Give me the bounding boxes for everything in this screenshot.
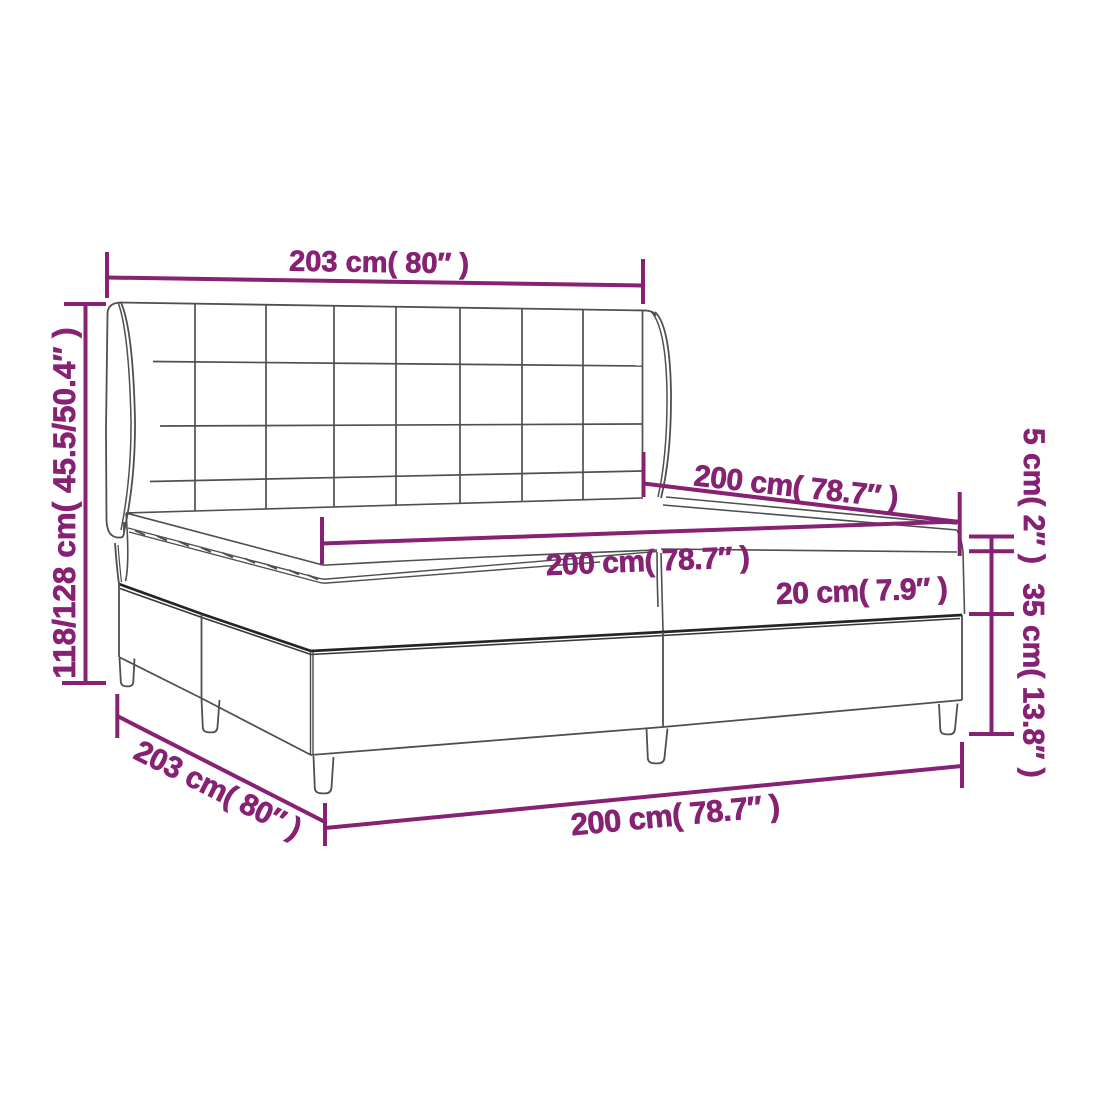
svg-text:5 cm( 2″ ): 5 cm( 2″ ) [1017, 428, 1050, 564]
svg-text:20 cm( 7.9″ ): 20 cm( 7.9″ ) [775, 572, 947, 611]
svg-text:118/128 cm( 45.5/50.4″ ): 118/128 cm( 45.5/50.4″ ) [46, 327, 82, 678]
svg-text:35 cm( 13.8″ ): 35 cm( 13.8″ ) [1017, 583, 1050, 777]
svg-text:203 cm( 80″ ): 203 cm( 80″ ) [289, 246, 469, 281]
